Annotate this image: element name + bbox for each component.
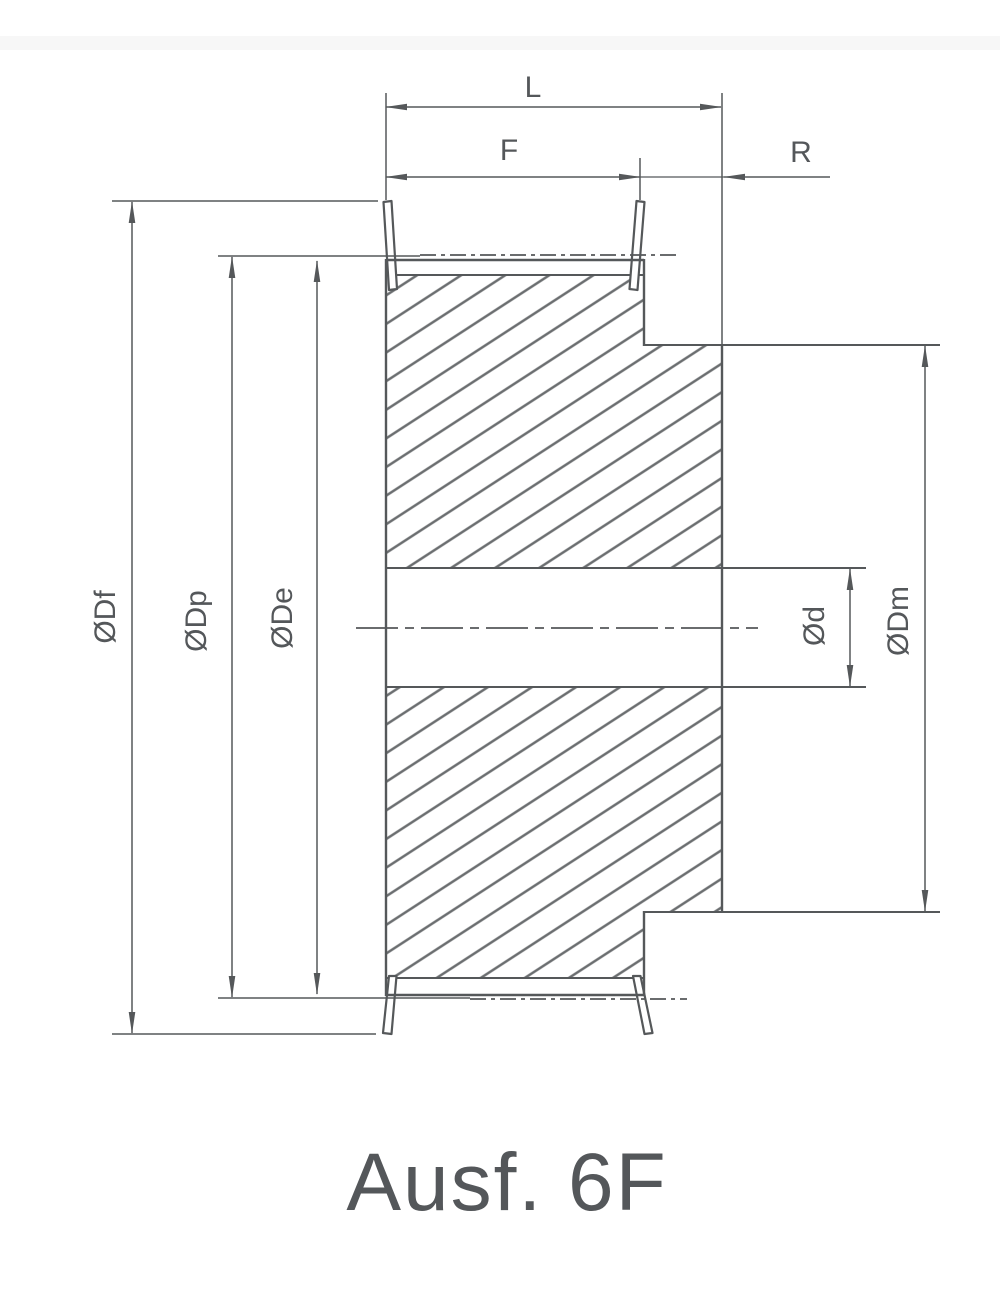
technical-drawing-page: L F R ØDf ØDp ØDe Ød ØDm Ausf. 6F	[0, 0, 1000, 1300]
label-flange-diameter: ØDf	[89, 590, 122, 644]
flange-bottom-right	[633, 976, 653, 1034]
label-outside-diameter: ØDe	[266, 587, 299, 649]
drawing-caption: Ausf. 6F	[0, 1136, 1000, 1230]
label-hub-projection: R	[790, 136, 812, 169]
hatch-lower-half	[386, 687, 722, 977]
label-bore-diameter: Ød	[798, 606, 831, 646]
label-overall-width: L	[525, 71, 542, 104]
hatch-upper-half	[386, 276, 722, 568]
section-hatching	[386, 276, 722, 977]
pulley-technical-drawing: L F R ØDf ØDp ØDe Ød ØDm	[0, 0, 1000, 1300]
label-hub-diameter: ØDm	[882, 586, 915, 656]
label-pitch-diameter: ØDp	[180, 590, 213, 652]
label-face-width: F	[500, 134, 518, 167]
